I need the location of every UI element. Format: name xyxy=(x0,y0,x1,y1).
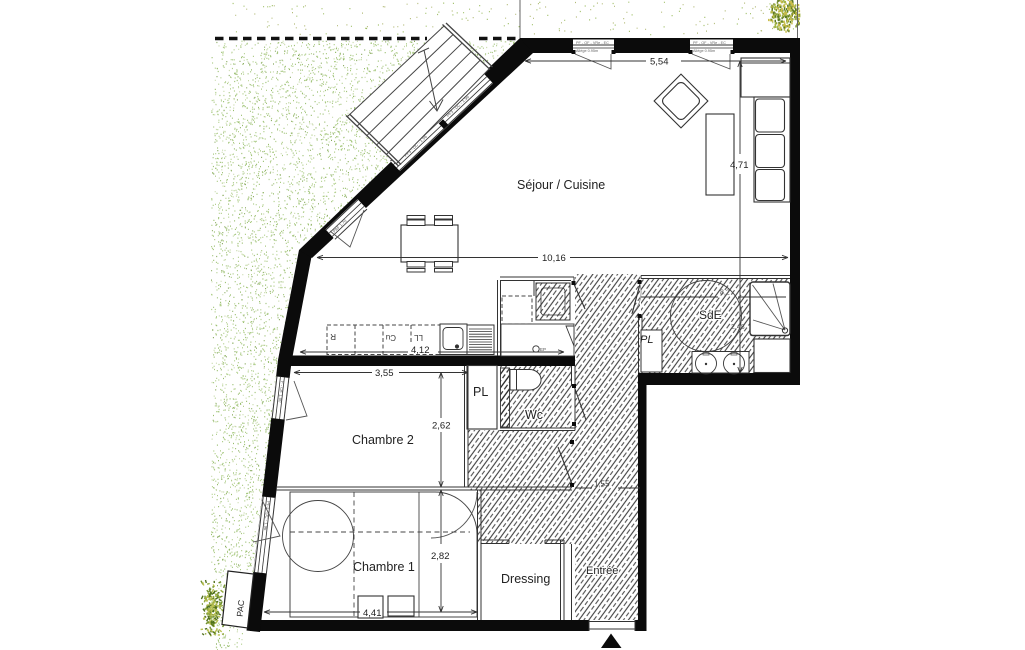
svg-text:Chambre 1: Chambre 1 xyxy=(353,560,415,574)
svg-text:5,54: 5,54 xyxy=(650,57,669,68)
svg-text:4,71: 4,71 xyxy=(730,160,749,171)
svg-text:4,12: 4,12 xyxy=(411,345,430,356)
svg-text:PF - OF - VRe - EC: PF - OF - VRe - EC xyxy=(576,41,609,45)
svg-text:3,55: 3,55 xyxy=(375,368,394,379)
svg-text:Cu: Cu xyxy=(386,333,396,342)
svg-text:PAC: PAC xyxy=(235,599,247,617)
svg-text:Dressing: Dressing xyxy=(501,572,550,586)
svg-text:EP: EP xyxy=(540,347,546,352)
svg-text:Wc: Wc xyxy=(525,408,543,422)
svg-text:4,41: 4,41 xyxy=(363,608,382,619)
svg-text:LL: LL xyxy=(414,333,423,342)
svg-text:Séjour / Cuisine: Séjour / Cuisine xyxy=(517,178,605,192)
svg-text:Chambre 2: Chambre 2 xyxy=(352,433,414,447)
svg-text:PF - OF - VRe - EC: PF - OF - VRe - EC xyxy=(693,41,726,45)
svg-text:8,2: 8,2 xyxy=(720,290,730,297)
svg-text:Allège 0.95m: Allège 0.95m xyxy=(693,49,715,53)
svg-text:PL: PL xyxy=(473,385,488,399)
svg-text:Allège 0.95m: Allège 0.95m xyxy=(576,49,598,53)
svg-text:PL: PL xyxy=(640,334,653,346)
svg-text:2,82: 2,82 xyxy=(431,551,450,562)
svg-text:10,16: 10,16 xyxy=(542,253,566,264)
svg-text:2,48: 2,48 xyxy=(731,324,745,331)
svg-text:1,55: 1,55 xyxy=(594,480,610,489)
svg-text:2,62: 2,62 xyxy=(432,421,451,432)
svg-text:SdE: SdE xyxy=(699,308,722,322)
svg-text:R: R xyxy=(330,332,336,341)
svg-text:Entrée: Entrée xyxy=(586,565,618,577)
